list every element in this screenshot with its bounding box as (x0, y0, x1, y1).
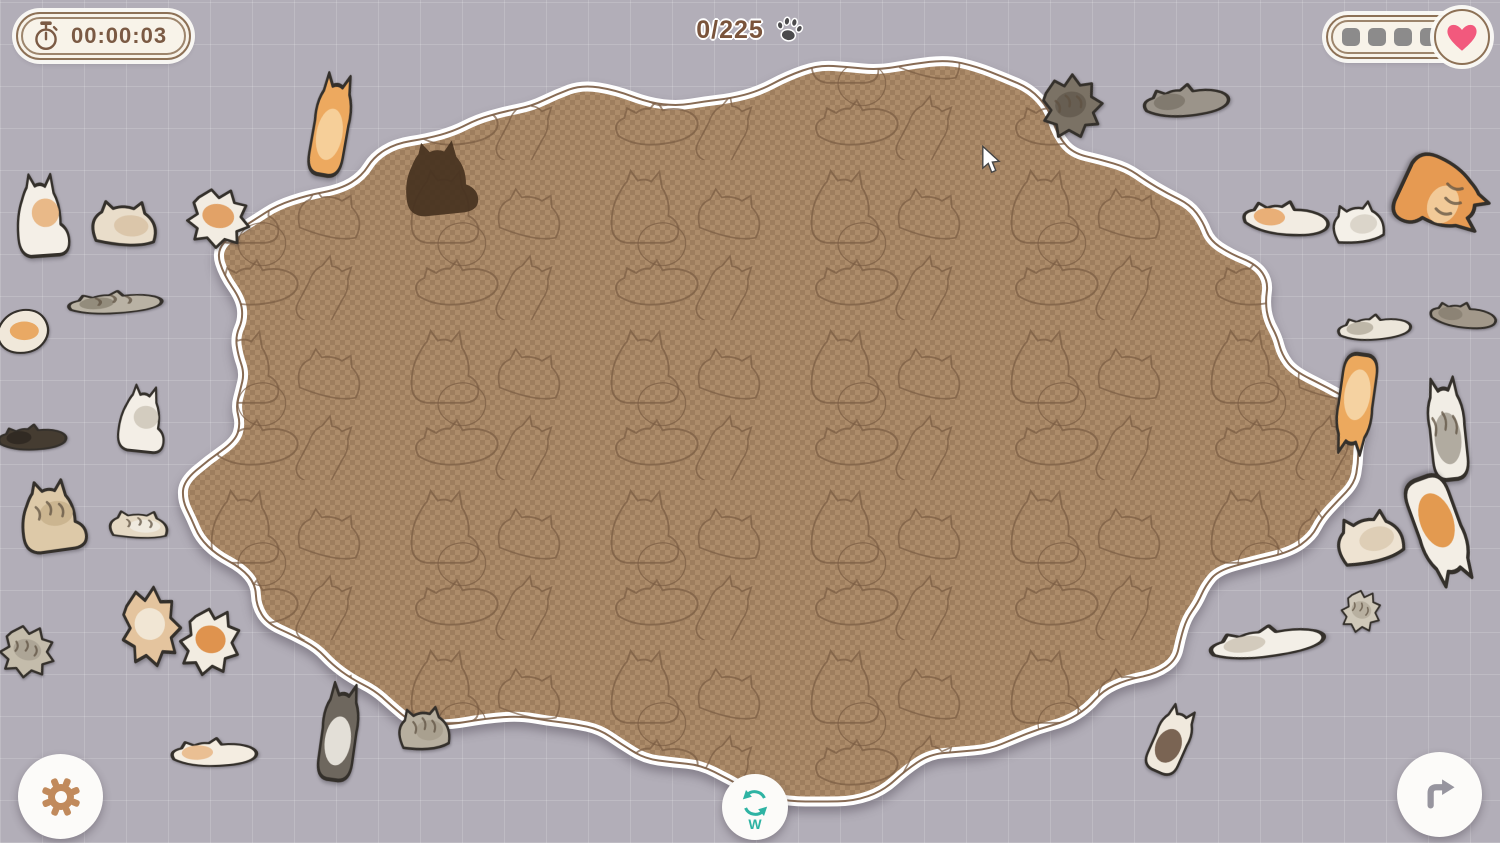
cat-piece-white-orange-crumpled[interactable] (184, 184, 255, 252)
stopwatch-icon (30, 20, 62, 52)
life-slot-empty (1394, 28, 1412, 46)
redo-arrow-icon (1414, 769, 1466, 821)
timer-pill: 00:00:03 (16, 12, 191, 60)
rotate-key-label: W (748, 818, 761, 830)
redo-button[interactable] (1397, 752, 1482, 837)
cat-piece-dark-tabby-piece[interactable] (1036, 70, 1108, 144)
cat-piece-white-gray-cat[interactable] (117, 384, 170, 454)
cat-piece-white-orange-curled[interactable] (1243, 198, 1329, 237)
cat-piece-orange-cat-on-edge[interactable] (305, 72, 357, 178)
cat-piece-dark-lying-cat[interactable] (0, 423, 67, 451)
settings-button[interactable] (18, 754, 103, 839)
cat-piece-cream-cat-right[interactable] (1332, 507, 1406, 569)
game-screen: 00:00:03 0/225 (0, 0, 1500, 843)
heart-icon (1445, 22, 1479, 53)
life-slot-empty (1342, 28, 1360, 46)
cat-piece-tan-crumpled-piece[interactable] (118, 585, 184, 669)
cat-piece-gray-brown-cat-right[interactable] (1430, 299, 1498, 331)
cat-piece-cream-loaf-cat[interactable] (92, 200, 157, 246)
cat-piece-cream-sleeping-cat[interactable] (172, 737, 257, 768)
cat-piece-chubby-gray-white-cat[interactable] (1424, 377, 1470, 482)
cat-piece-orange-hanging-cat[interactable] (1332, 352, 1380, 456)
life-slot-empty (1368, 28, 1386, 46)
cat-piece-small-gray-tabby-right[interactable] (1336, 585, 1387, 638)
cat-piece-brown-white-small-cat[interactable] (1142, 702, 1201, 779)
cat-piece-gray-stretched-cat[interactable] (68, 288, 162, 317)
progress-counter: 0/225 (696, 15, 804, 45)
progress-value: 0/225 (696, 16, 764, 45)
cat-piece-white-orange-hanging[interactable] (1400, 471, 1479, 590)
cat-piece-white-cat-right[interactable] (1331, 200, 1386, 245)
gear-icon (37, 773, 85, 821)
cat-piece-gray-tabby-piece[interactable] (0, 620, 60, 683)
rotate-piece-button[interactable]: W (722, 774, 788, 840)
cat-piece-white-sitting-cat[interactable] (14, 173, 70, 258)
cat-piece-white-banana-cat[interactable] (1209, 618, 1326, 664)
cat-piece-tabby-loaf-cat[interactable] (110, 510, 168, 538)
piece-tray (0, 0, 1500, 843)
cat-piece-white-orange-crumpled-2[interactable] (173, 601, 249, 683)
cat-piece-gray-tabby-sitting[interactable] (398, 706, 450, 750)
cat-piece-gray-white-piece-right[interactable] (1337, 312, 1411, 343)
cat-piece-orange-tabby-flying[interactable] (1389, 148, 1498, 250)
cat-piece-tan-walking-cat[interactable] (16, 477, 87, 555)
cat-piece-gray-standing-cat[interactable] (315, 682, 363, 782)
cat-piece-gray-cat-topright[interactable] (1143, 80, 1230, 120)
timer-value: 00:00:03 (71, 23, 167, 49)
heart-badge (1434, 9, 1490, 65)
lives-pill (1326, 15, 1484, 59)
paw-icon (774, 15, 804, 45)
life-slots (1342, 28, 1438, 46)
cat-piece-orange-white-edge-cat[interactable] (0, 310, 48, 353)
mouse-cursor (980, 145, 1002, 175)
